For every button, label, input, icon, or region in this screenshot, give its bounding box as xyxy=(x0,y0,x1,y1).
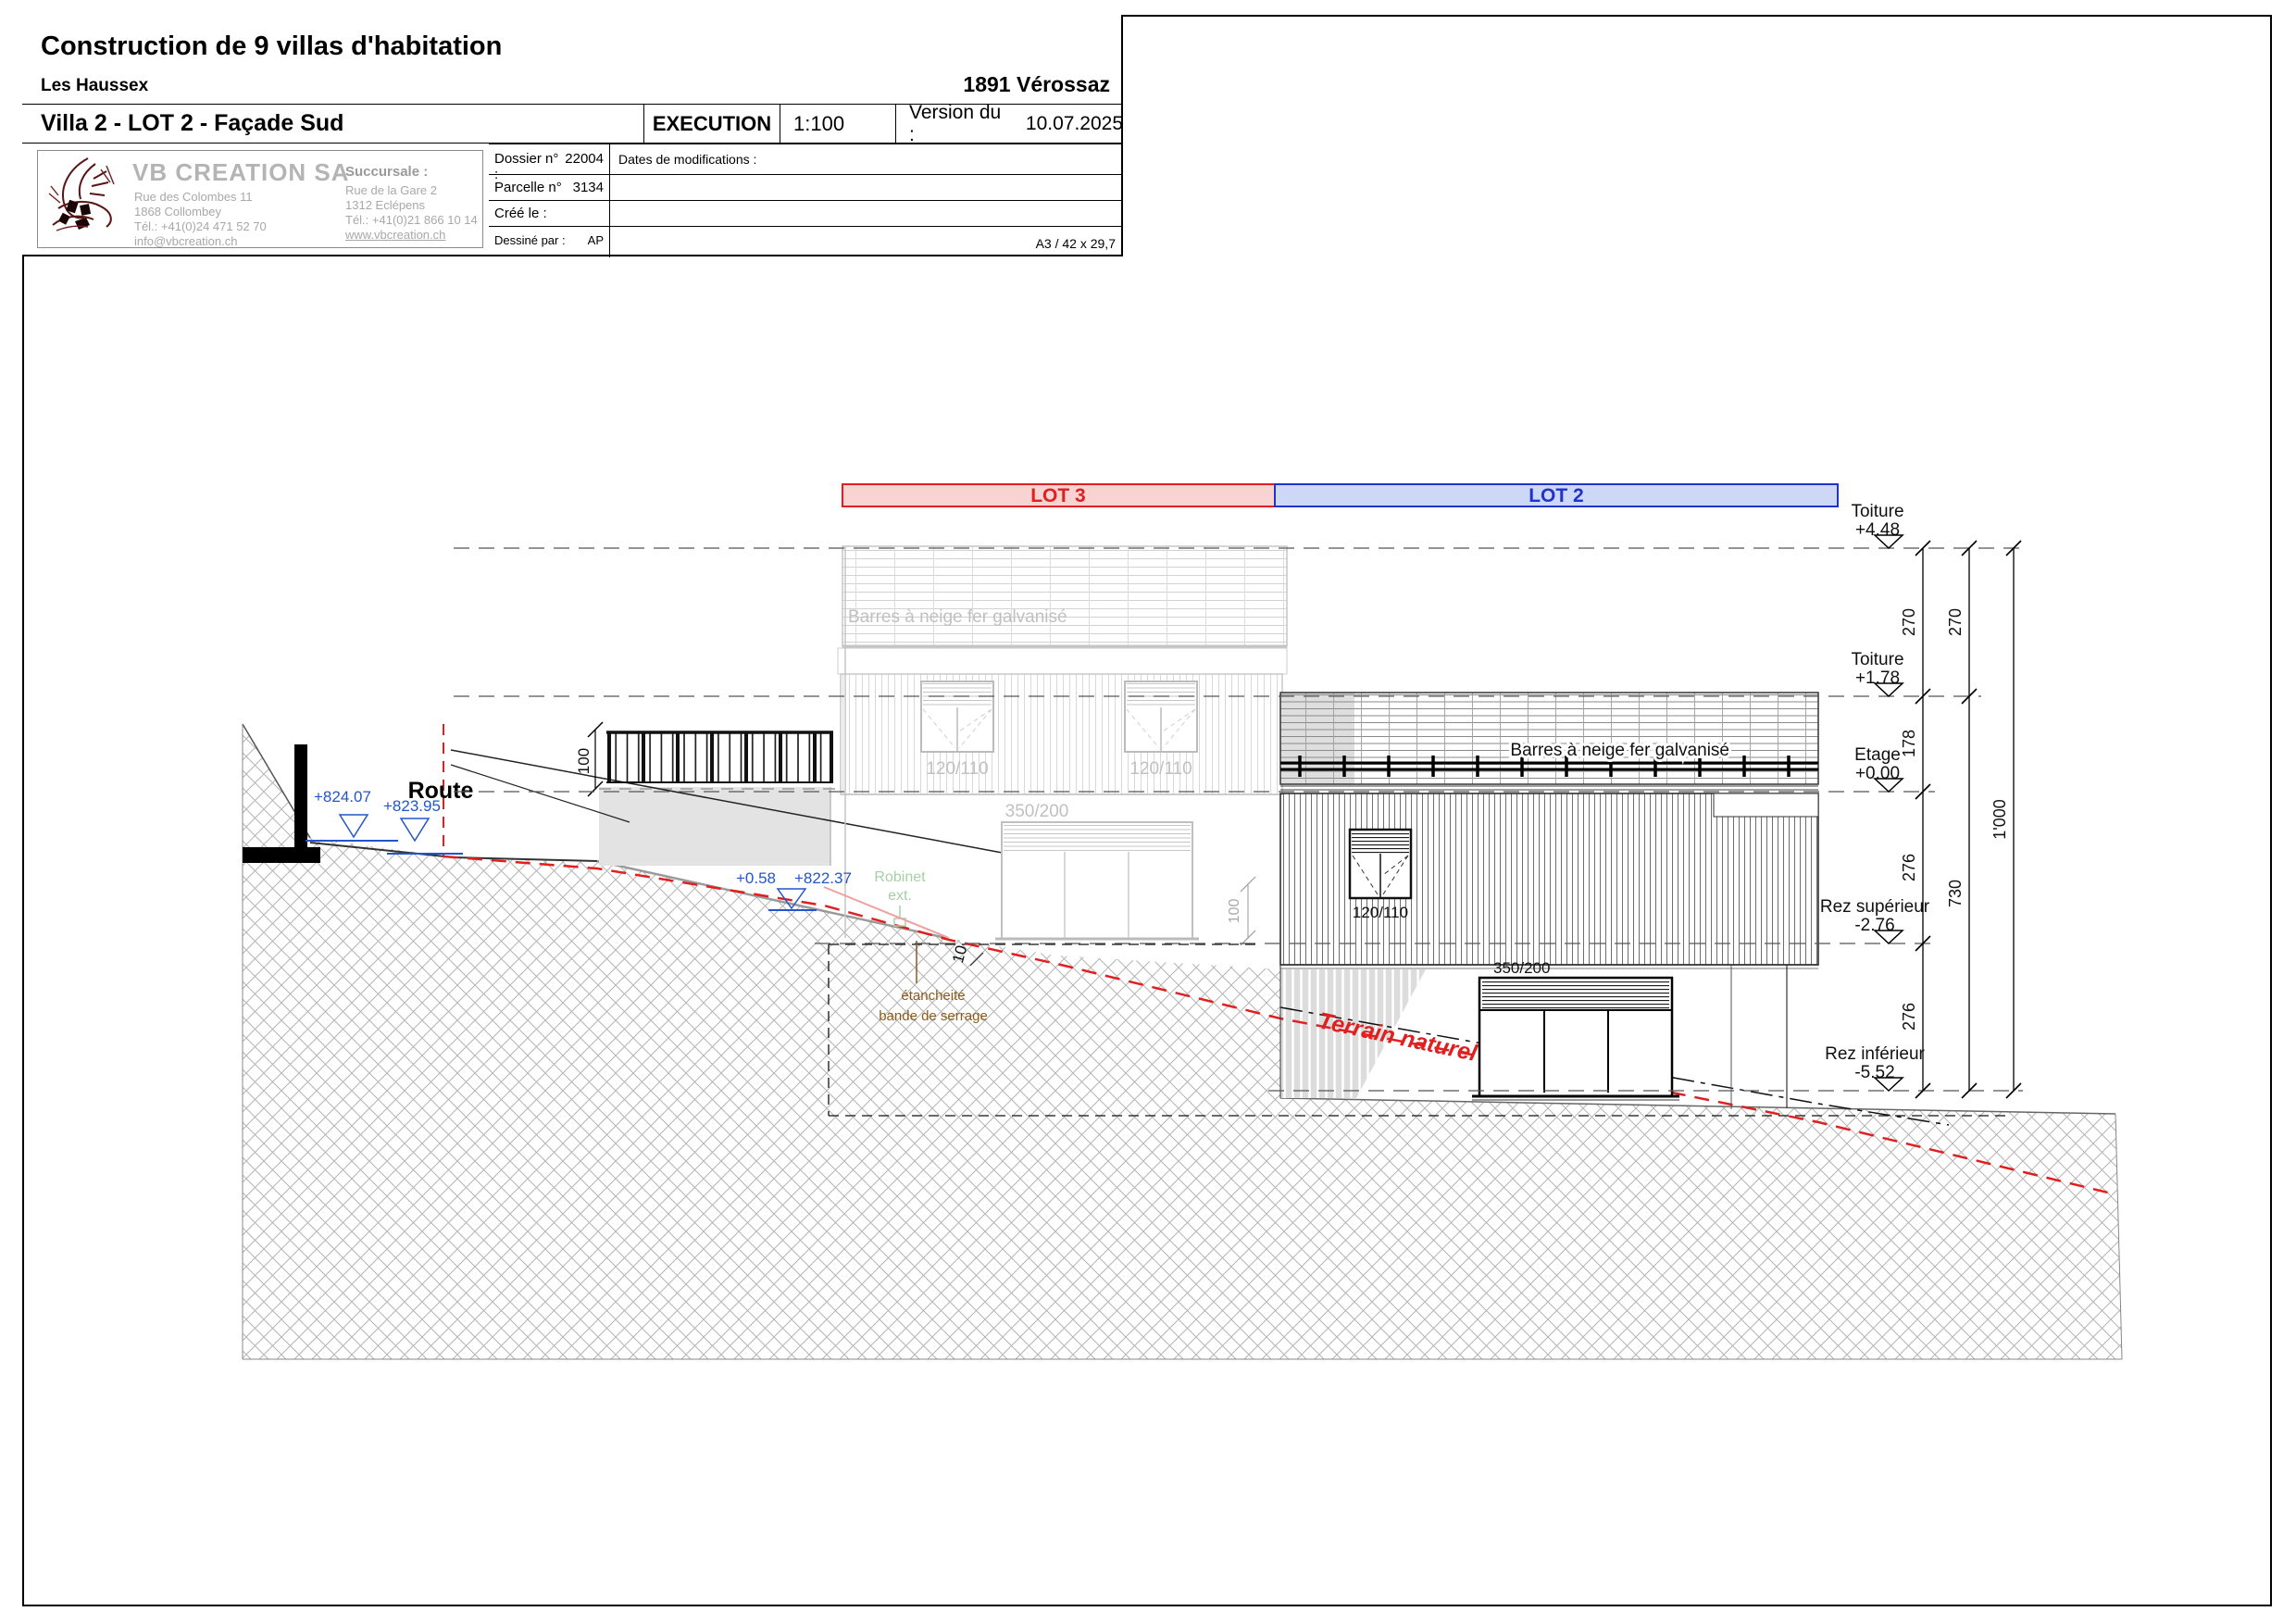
lot3-door-label: 350/200 xyxy=(1005,802,1069,821)
dossier-number: 22004 xyxy=(565,151,604,182)
drawn-by-row: Dessiné par : AP xyxy=(489,233,609,247)
lot2-window xyxy=(1350,830,1411,898)
lot2-bar-label: LOT 2 xyxy=(1529,485,1584,506)
level-marker-toiture-178: Toiture +1.78 xyxy=(1851,650,1903,696)
level-name: Etage xyxy=(1854,745,1901,765)
scale-cell: 1:100 xyxy=(780,105,895,144)
company-address: Rue des Colombes 11 1868 Collombey Tél.:… xyxy=(134,190,267,249)
branch-block: Succursale : Rue de la Gare 2 1312 Eclép… xyxy=(345,164,478,243)
dossier-rule2 xyxy=(489,200,1123,201)
level-marker-triangle xyxy=(1875,683,1903,696)
title-block-header: Construction de 9 villas d'habitation Le… xyxy=(22,15,1121,105)
drawn-by-label: Dessiné par : xyxy=(494,233,566,247)
company-name: VB CREATION SA xyxy=(132,158,350,187)
lot2-eave xyxy=(1280,786,1818,790)
lot3-door-louvre xyxy=(1004,824,1191,852)
dim-178: 178 xyxy=(1900,730,1918,757)
company-logo xyxy=(40,153,129,245)
parcelle-number: 3134 xyxy=(573,180,604,195)
branch-website-link[interactable]: www.vbcreation.ch xyxy=(345,228,478,243)
terrain-section: Terrain naturel Terrain aménagé xyxy=(243,724,2122,1359)
lot3-building: Barres à neige fer galvanisé 120/110 120… xyxy=(824,546,1287,945)
retaining-wall-base xyxy=(243,847,320,863)
drawing-title: Villa 2 - LOT 2 - Façade Sud xyxy=(41,110,343,137)
phase-cell: EXECUTION xyxy=(643,105,780,144)
lot2-window-label: 120/110 xyxy=(1353,904,1408,921)
version-cell: Version du : 10.07.2025 xyxy=(895,105,1123,144)
lot2-sliding-door xyxy=(1472,978,1679,1100)
dim-730: 730 xyxy=(1946,880,1965,907)
branch-label: Succursale : xyxy=(345,164,478,180)
level-marker-rez-inf: Rez inférieur -5.52 xyxy=(1825,1044,1925,1091)
lot3-window-b xyxy=(1125,681,1197,752)
company-block: VB CREATION SA Rue des Colombes 11 1868 … xyxy=(37,150,483,248)
level-marker-etage: Etage +0.00 xyxy=(1854,745,1903,792)
lot3-window-b-label: 120/110 xyxy=(1129,759,1192,779)
paper-format: A3 / 42 x 29,7 xyxy=(1036,236,1116,251)
dim-276a: 276 xyxy=(1900,854,1918,881)
dossier-divider xyxy=(609,144,610,257)
parcelle-label: Parcelle n° xyxy=(494,180,562,195)
version-date: 10.07.2025 xyxy=(1026,113,1123,135)
lot3-window-a xyxy=(921,681,993,752)
lot2-facade-notch xyxy=(1714,793,1818,817)
dossier-label: Dossier n° : xyxy=(494,151,565,182)
dim-1000: 1'000 xyxy=(1990,799,2009,839)
project-location: 1891 Vérossaz xyxy=(963,72,1110,97)
level-name: Toiture xyxy=(1851,650,1903,669)
modifications-label: Dates de modifications : xyxy=(618,152,756,167)
robinet-label-line1: Robinet xyxy=(874,869,926,885)
lot3-dim100-label: 100 xyxy=(1227,899,1242,924)
dim-276b: 276 xyxy=(1900,1003,1918,1031)
level-823-95-marker xyxy=(401,818,429,841)
lot3-window-b-louvre xyxy=(1127,683,1195,707)
created-row: Créé le : xyxy=(489,206,609,221)
dossier-row: Dossier n° : 22004 xyxy=(489,151,609,182)
dimension-chains: 270 178 276 276 270 730 1'000 xyxy=(1900,541,2021,1098)
scale-value: 1:100 xyxy=(793,112,844,136)
lot3-snowbars-label: Barres à neige fer galvanisé xyxy=(848,607,1067,627)
company-email: info@vbcreation.ch xyxy=(134,234,267,249)
dim-270a: 270 xyxy=(1900,608,1918,636)
lot2-door-louvre xyxy=(1482,981,1669,1010)
route-label: Route xyxy=(408,778,474,804)
branch-address-line2: 1312 Eclépens xyxy=(345,198,478,213)
drawing-title-row: Villa 2 - LOT 2 - Façade Sud EXECUTION 1… xyxy=(22,105,1121,144)
level-name: Rez inférieur xyxy=(1825,1044,1925,1064)
level-name: Rez supérieur xyxy=(1820,897,1930,917)
level-marker-triangle xyxy=(1875,931,1903,943)
company-address-line2: 1868 Collombey xyxy=(134,205,267,219)
project-title: Construction de 9 villas d'habitation xyxy=(41,31,502,62)
parcelle-row: Parcelle n° 3134 xyxy=(489,180,609,195)
project-subtitle: Les Haussex xyxy=(41,76,148,96)
level-plus058-label: +0.58 xyxy=(736,869,776,887)
lot3-window-a-louvre xyxy=(923,683,992,707)
etancheite-label-line1: étancheité xyxy=(901,988,965,1004)
drawn-by-value: AP xyxy=(588,233,604,247)
lot3-fascia xyxy=(838,648,1287,674)
level-marker-triangle xyxy=(1875,1078,1903,1091)
lot3-upper-facade xyxy=(841,674,1282,794)
level-marker-triangle xyxy=(1875,779,1903,792)
lot-bars: LOT 3 LOT 2 xyxy=(842,484,1838,506)
lot3-sliding-door xyxy=(995,822,1199,939)
lot2-snowbars-label: Barres à neige fer galvanisé xyxy=(1510,741,1729,760)
level-markers: Toiture +4.48 Toiture +1.78 Etage +0.00 … xyxy=(1820,502,1930,1091)
level-marker-triangle xyxy=(1875,535,1903,548)
lot2-window-louvre xyxy=(1352,831,1409,854)
level-822-37-label: +822.37 xyxy=(794,869,852,887)
branch-address-line1: Rue de la Gare 2 xyxy=(345,183,478,198)
etancheite-label-line2: bande de serrage xyxy=(879,1008,988,1024)
created-label: Créé le : xyxy=(494,206,547,221)
railing-bars xyxy=(606,732,833,782)
lot2-door-label: 350/200 xyxy=(1493,959,1550,977)
level-824-07-label: +824.07 xyxy=(314,788,371,806)
company-phone: Tél.: +41(0)24 471 52 70 xyxy=(134,219,267,234)
dim-270b: 270 xyxy=(1946,608,1965,636)
terrain-hatch xyxy=(243,724,2122,1359)
lot3-roof xyxy=(842,546,1287,646)
branch-phone: Tél.: +41(0)21 866 10 14 xyxy=(345,213,478,228)
railing-dim-label: 100 xyxy=(575,748,593,774)
company-address-line1: Rue des Colombes 11 xyxy=(134,190,267,205)
dossier-table: Dossier n° : 22004 Parcelle n° 3134 Créé… xyxy=(489,144,1123,256)
robinet-label-line2: ext. xyxy=(888,888,912,904)
lot3-bar-label: LOT 3 xyxy=(1030,485,1086,506)
level-824-07-marker xyxy=(340,815,368,837)
level-marker-rez-sup: Rez supérieur -2.76 xyxy=(1820,897,1930,943)
level-marker-toiture-448: Toiture +4.48 xyxy=(1851,502,1903,548)
version-label: Version du : xyxy=(909,102,1011,146)
retaining-wall-stem xyxy=(294,744,307,850)
phase-label: EXECUTION xyxy=(653,112,771,136)
lot3-window-a-label: 120/110 xyxy=(926,759,988,779)
level-name: Toiture xyxy=(1851,502,1903,521)
dossier-rule3 xyxy=(489,226,1123,227)
title-block: Construction de 9 villas d'habitation Le… xyxy=(22,15,1123,256)
